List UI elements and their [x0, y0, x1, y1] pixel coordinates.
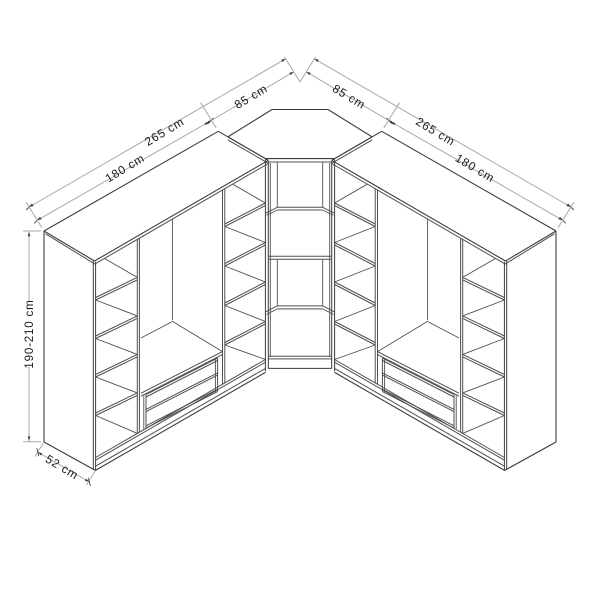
- svg-text:52 cm: 52 cm: [43, 452, 81, 483]
- svg-text:265 cm: 265 cm: [413, 114, 457, 148]
- svg-text:85 cm: 85 cm: [330, 81, 368, 112]
- svg-text:190-210 cm: 190-210 cm: [23, 299, 36, 368]
- svg-text:85 cm: 85 cm: [232, 81, 270, 112]
- svg-text:265 cm: 265 cm: [142, 114, 186, 148]
- svg-text:180 cm: 180 cm: [103, 151, 147, 185]
- svg-text:180 cm: 180 cm: [453, 151, 497, 185]
